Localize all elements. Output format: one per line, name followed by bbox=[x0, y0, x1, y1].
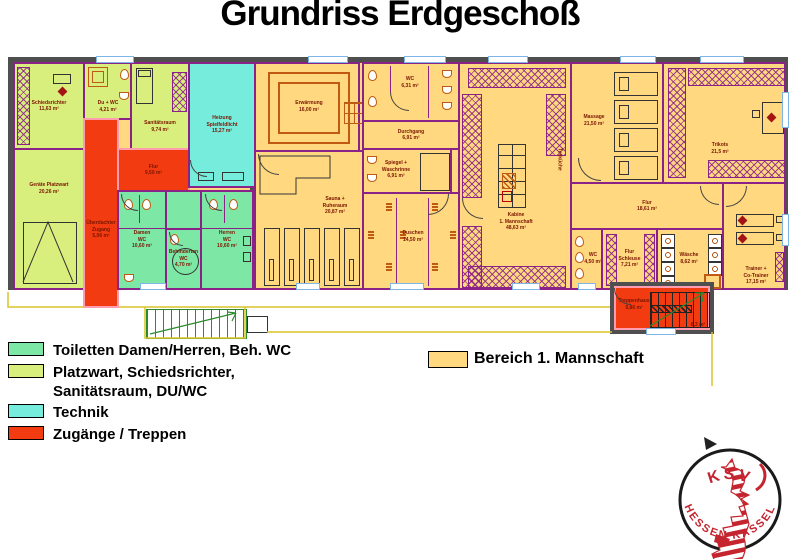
club-logo: KSV HESSEN KASSEL bbox=[652, 438, 800, 559]
locker-column bbox=[546, 94, 566, 156]
bench bbox=[289, 259, 294, 281]
room-label: Behinderten WC 4,70 m² bbox=[169, 249, 198, 269]
stall bbox=[344, 228, 360, 286]
room-label: Sauna + Ruheraum 20,87 m² bbox=[308, 196, 362, 216]
window bbox=[96, 56, 134, 63]
toilet-icon bbox=[368, 96, 377, 107]
legend-label: Toiletten Damen/Herren, Beh. WC bbox=[53, 342, 291, 361]
pillow-icon bbox=[619, 105, 629, 119]
toilet-icon bbox=[120, 69, 129, 80]
room-sanitaetsraum: Sanitätsraum 9,74 m² bbox=[130, 62, 190, 150]
pillow-icon bbox=[619, 77, 629, 91]
legend-swatch-orange bbox=[428, 351, 468, 368]
stall bbox=[304, 228, 320, 286]
room-label: Flur Schleuse 7,21 m² bbox=[619, 249, 641, 269]
window bbox=[700, 56, 744, 63]
room-label: Durchgang 6,91 m² bbox=[398, 129, 424, 142]
room-du-wc: Du + WC 4,21 m² bbox=[83, 62, 132, 120]
mirror-alcove bbox=[420, 153, 450, 191]
shower-icon bbox=[368, 234, 374, 236]
chair-icon bbox=[58, 87, 68, 97]
equipment bbox=[222, 172, 244, 181]
room-ueberdachter-zugang: Überdachter Zugang 5,06 m² bbox=[83, 118, 119, 308]
shower-icon bbox=[432, 266, 438, 268]
garage-gate bbox=[23, 222, 77, 284]
legend-swatch-green bbox=[8, 342, 44, 356]
room-label: WC 6,31 m² bbox=[394, 76, 426, 89]
window bbox=[620, 56, 656, 63]
room-flur-links: Flur 9,50 m² bbox=[117, 148, 190, 192]
room-label: Trikots 21,5 m² bbox=[692, 142, 748, 155]
shower-icon bbox=[386, 206, 392, 208]
massage-table bbox=[614, 100, 658, 124]
window bbox=[782, 214, 789, 246]
shower-inner bbox=[92, 71, 104, 83]
outdoor-stairs bbox=[146, 309, 247, 339]
window bbox=[512, 283, 540, 290]
room-label: Schiedsrichter 11,63 m² bbox=[32, 100, 67, 113]
legend-label: Platzwart, Schiedsrichter, Sanitätsraum,… bbox=[53, 364, 235, 402]
urinal-icon bbox=[243, 252, 251, 262]
window bbox=[296, 283, 320, 290]
room-spiegel: Spiegel + Waschrinne 6,91 m² bbox=[362, 148, 452, 194]
room-trikots: Trikots 21,5 m² bbox=[662, 62, 786, 184]
legend-swatch-red bbox=[8, 426, 44, 440]
bench bbox=[349, 259, 354, 281]
room-duschen: Duschen 14,50 m² bbox=[362, 192, 460, 290]
pillow-icon bbox=[138, 70, 151, 77]
sink-icon bbox=[119, 92, 129, 100]
locker-row bbox=[688, 68, 786, 86]
sink-icon bbox=[442, 102, 452, 110]
stall bbox=[264, 228, 280, 286]
room-wc-kabine: WC 6,31 m² bbox=[362, 62, 460, 122]
toilet-icon bbox=[575, 268, 584, 279]
stall bbox=[324, 228, 340, 286]
toilet-icon bbox=[575, 252, 584, 263]
room-label: Herren WC 10,60 m² bbox=[217, 230, 237, 250]
bench bbox=[269, 259, 274, 281]
room-label: Sanitätsraum 9,74 m² bbox=[135, 120, 185, 133]
window bbox=[488, 56, 528, 63]
closet bbox=[17, 67, 30, 145]
locker-column bbox=[668, 68, 686, 178]
room-label: Massage 21,50 m² bbox=[574, 114, 614, 127]
room-waesche: Wäsche 8,62 m² bbox=[656, 228, 724, 290]
window bbox=[390, 283, 424, 290]
toilet-icon bbox=[368, 70, 377, 81]
sink-unit bbox=[502, 191, 512, 202]
shower-icon bbox=[386, 266, 392, 268]
pillow-icon bbox=[619, 161, 629, 175]
room-label: Wäsche 8,62 m² bbox=[674, 252, 704, 265]
room-durchgang: Durchgang 6,91 m² bbox=[362, 120, 460, 150]
legend-item-technik: Technik bbox=[8, 404, 291, 423]
floorplan-page: Grundriss Erdgeschoß Schiedsrichter 11,6… bbox=[0, 0, 800, 559]
legend-label: Bereich 1. Mannschaft bbox=[474, 349, 644, 369]
legend-item-zugaenge: Zugänge / Treppen bbox=[8, 426, 291, 445]
stall-partition bbox=[224, 195, 225, 223]
window bbox=[308, 56, 348, 63]
shower-tray bbox=[88, 67, 108, 87]
cabinet bbox=[172, 72, 187, 112]
washer-icon bbox=[661, 262, 675, 276]
room-schiedsrichter: Schiedsrichter 11,63 m² bbox=[13, 62, 85, 150]
room-label: Du + WC 4,21 m² bbox=[87, 100, 129, 113]
sink-icon bbox=[442, 70, 452, 78]
toilet-icon bbox=[575, 236, 584, 247]
washer-icon bbox=[708, 234, 722, 248]
room-wc-trainer: WC 4,50 m² bbox=[570, 228, 603, 290]
pillow-icon bbox=[619, 133, 629, 147]
locker-column bbox=[462, 94, 482, 198]
room-label: Heizung Spielfeldlicht 15,27 m² bbox=[206, 115, 237, 135]
locker-row bbox=[708, 160, 786, 178]
legend-item-toiletten: Toiletten Damen/Herren, Beh. WC bbox=[8, 342, 291, 361]
room-label: Flur 18,61 m² bbox=[637, 200, 657, 213]
page-title: Grundriss Erdgeschoß bbox=[0, 0, 800, 34]
window bbox=[578, 283, 596, 290]
room-label: Trainer + Co-Trainer 17,15 m² bbox=[730, 266, 782, 286]
landing bbox=[247, 316, 268, 333]
stall-wall bbox=[202, 228, 252, 229]
urinal-icon bbox=[243, 236, 251, 246]
chair bbox=[752, 110, 760, 118]
room-label: Spiegel + Waschrinne 6,91 m² bbox=[372, 160, 420, 180]
window bbox=[140, 283, 166, 290]
room-label: Duschen 14,50 m² bbox=[388, 230, 438, 243]
desk bbox=[53, 74, 71, 84]
legend-bereich: Bereich 1. Mannschaft bbox=[428, 349, 644, 369]
stairs-landing-hatch bbox=[650, 305, 692, 313]
toilet-icon bbox=[229, 199, 238, 210]
room-label: Erwärmung 16,00 m² bbox=[276, 100, 342, 113]
locker-row bbox=[468, 68, 566, 88]
room-label: Damen WC 10,60 m² bbox=[132, 230, 152, 250]
room-geraete-platzwart: Geräte Platzwart 20,26 m² bbox=[13, 148, 85, 290]
stove-icon bbox=[502, 173, 516, 189]
room-erwaermung: Erwärmung 16,00 m² bbox=[254, 62, 360, 152]
massage-table bbox=[614, 128, 658, 152]
window bbox=[782, 92, 789, 128]
stall-wall bbox=[119, 228, 165, 229]
bench bbox=[329, 259, 334, 281]
wc-lobby bbox=[165, 190, 202, 230]
bench bbox=[309, 259, 314, 281]
room-flur-schleuse: Flur Schleuse 7,21 m² bbox=[601, 228, 658, 290]
locker-column bbox=[606, 234, 617, 286]
room-label: Flur 9,50 m² bbox=[145, 164, 162, 177]
washer-icon bbox=[661, 248, 675, 262]
room-label: Geräte Platzwart 20,26 m² bbox=[17, 182, 81, 195]
legend: Toiletten Damen/Herren, Beh. WC Platzwar… bbox=[8, 342, 291, 448]
shower-icon bbox=[450, 234, 456, 236]
window bbox=[646, 328, 676, 335]
massage-table bbox=[614, 156, 658, 180]
room-kabine-1-mannschaft: Teeküche Kabine 1. Mannschaft 48,63 m² bbox=[458, 62, 572, 290]
massage-table bbox=[614, 72, 658, 96]
legend-item-platzwart: Platzwart, Schiedsrichter, Sanitätsraum,… bbox=[8, 364, 291, 402]
kitchen-island bbox=[498, 144, 526, 208]
stall-partition bbox=[390, 66, 391, 92]
room-label: Überdachter Zugang 5,06 m² bbox=[86, 220, 116, 240]
teekueche-label: Teeküche bbox=[556, 148, 563, 171]
wall-divider bbox=[428, 66, 429, 118]
locker-column bbox=[644, 234, 655, 286]
room-label: WC 4,50 m² bbox=[584, 252, 602, 265]
sink-icon bbox=[124, 274, 134, 282]
legend-swatch-yellowgreen bbox=[8, 364, 44, 378]
washer-icon bbox=[708, 248, 722, 262]
legend-swatch-cyan bbox=[8, 404, 44, 418]
legend-label: Technik bbox=[53, 404, 109, 423]
stall-partition bbox=[139, 195, 140, 223]
sink-icon bbox=[442, 86, 452, 94]
terrace-area-label: 6,3 m² bbox=[686, 322, 710, 329]
washer-icon bbox=[661, 234, 675, 248]
legend-label: Zugänge / Treppen bbox=[53, 426, 186, 445]
window bbox=[404, 56, 446, 63]
toilet-icon bbox=[142, 199, 151, 210]
room-label: Kabine 1. Mannschaft 48,63 m² bbox=[476, 212, 556, 232]
stall bbox=[284, 228, 300, 286]
